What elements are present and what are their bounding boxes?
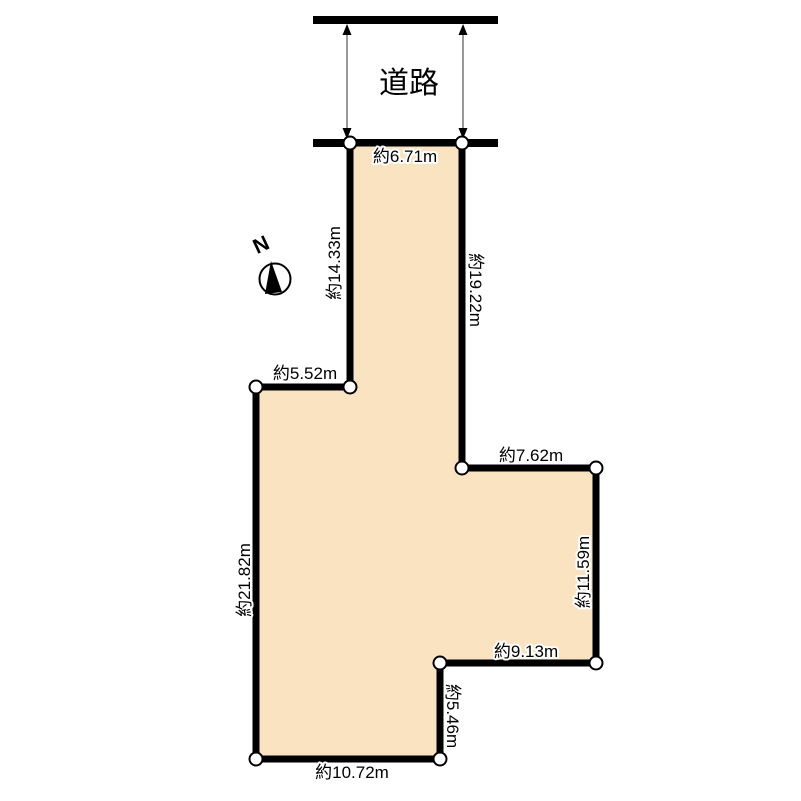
edge-label-upper-strip-right: 約19.22m	[466, 253, 485, 327]
arrowhead-up-icon	[459, 24, 468, 35]
edge-label-right-side: 約11.59m	[574, 536, 593, 608]
edge-label-upper-notch-top: 約5.52m	[273, 364, 337, 383]
vertex-marker	[434, 657, 447, 670]
land-plot-diagram: 道路 N	[0, 0, 801, 801]
compass-north-label: N	[250, 231, 273, 258]
edge-label-right-step-top: 約7.62m	[499, 446, 563, 465]
vertex-marker	[344, 381, 357, 394]
vertex-marker	[456, 137, 469, 150]
edge-label-lower-step-top: 約9.13m	[494, 642, 558, 661]
vertex-marker	[590, 657, 603, 670]
edge-label-lower-step-side: 約5.46m	[443, 684, 462, 748]
road-far-edge-line	[313, 16, 498, 24]
edge-label-left-side: 約21.82m	[235, 543, 254, 617]
road-label: 道路	[379, 67, 439, 100]
compass: N	[250, 231, 291, 294]
edge-label-upper-strip-left: 約14.33m	[325, 226, 344, 300]
edge-label-frontage-top: 約6.71m	[373, 147, 437, 166]
plot: 約6.71m 約14.33m 約19.22m 約5.52m 約7.62m 約11…	[235, 137, 603, 783]
edge-label-bottom: 約10.72m	[315, 763, 389, 782]
vertex-marker	[590, 462, 603, 475]
diagram-svg: 道路 N	[0, 0, 801, 801]
road: 道路	[313, 16, 498, 147]
arrowhead-up-icon	[343, 24, 352, 35]
road-width-arrow-left	[343, 24, 352, 139]
road-width-arrow-right	[459, 24, 468, 139]
vertex-marker	[456, 462, 469, 475]
vertex-marker	[344, 137, 357, 150]
vertex-marker	[250, 753, 263, 766]
vertex-marker	[250, 381, 263, 394]
vertex-marker	[434, 753, 447, 766]
